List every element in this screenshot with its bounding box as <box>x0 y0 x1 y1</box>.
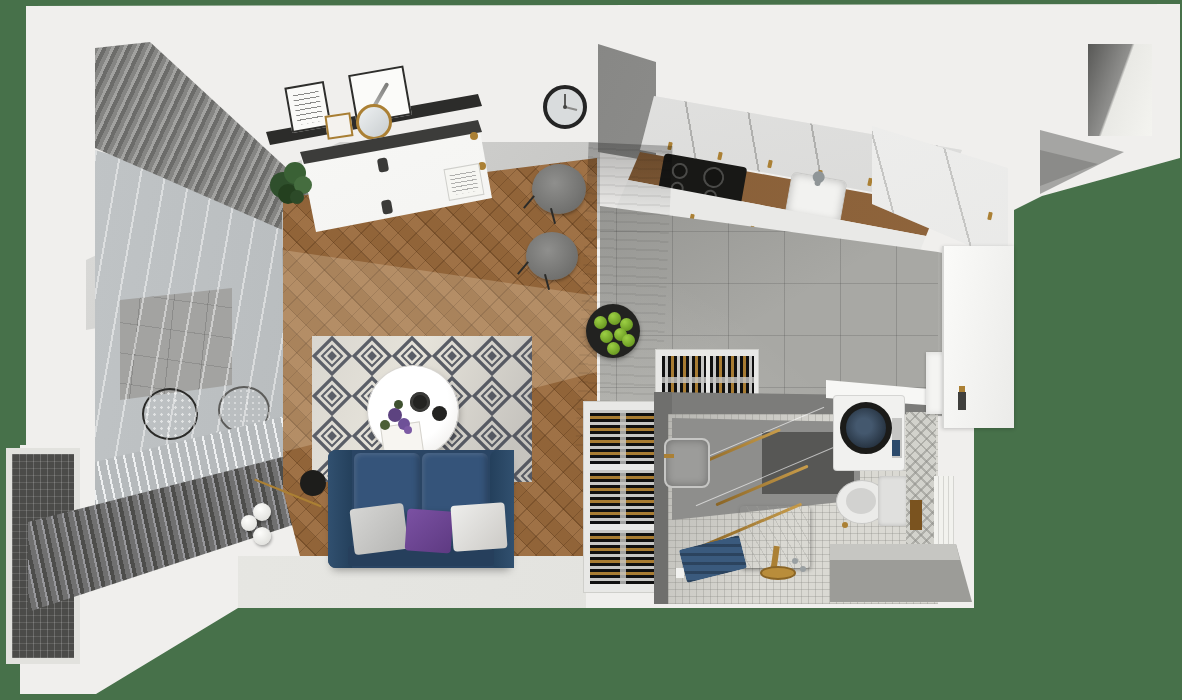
bouquet-green <box>380 420 390 430</box>
wall-niche <box>1088 44 1152 136</box>
black-candle-bowl <box>410 392 430 412</box>
washer-drum-icon <box>840 402 892 454</box>
dining-chair-1 <box>532 164 586 214</box>
washing-machine <box>834 396 904 470</box>
magazine-text-lines <box>449 169 478 195</box>
gold-floor-faucet-base <box>760 566 796 580</box>
navy-sofa <box>328 450 514 568</box>
toilet-gold-pipe <box>842 522 848 528</box>
art-text-lines <box>292 89 323 125</box>
bouquet-green-2 <box>394 400 403 409</box>
toilet-seat <box>846 488 876 514</box>
black-side-disc <box>300 470 326 496</box>
wine-bottles-compartment <box>590 410 656 464</box>
wall-clock <box>542 84 588 130</box>
wine-bottles-compartment <box>590 470 656 524</box>
wine-bottles-compartment <box>590 530 656 584</box>
open-magazine <box>443 163 484 201</box>
pillow-purple <box>405 508 454 553</box>
small-gold-frame <box>324 112 353 139</box>
burner-icon <box>701 165 725 189</box>
lamp-globe <box>253 527 271 545</box>
typography-art-frame <box>284 81 331 133</box>
lamp-globe <box>241 515 257 531</box>
washer-display <box>892 440 900 456</box>
plant-leaf-5 <box>290 190 304 204</box>
toilet-tank <box>878 476 908 526</box>
wine-rack-vertical <box>584 402 662 592</box>
green-apple <box>607 342 620 355</box>
black-candle-small <box>432 406 447 421</box>
pillow-gray <box>349 503 408 555</box>
green-apple <box>594 316 607 329</box>
door-handle <box>958 392 966 410</box>
faucet-handle-dot <box>792 558 798 564</box>
basin-gold-tap <box>664 454 674 458</box>
gold-knob <box>470 132 478 140</box>
wash-basin <box>664 438 710 488</box>
fruit-plate <box>586 304 640 358</box>
bouquet-purple-3 <box>404 426 412 434</box>
green-apple <box>622 334 635 347</box>
faucet-handle-dot <box>800 566 806 572</box>
pillow-white <box>450 502 507 552</box>
wood-inset-panel <box>910 500 922 530</box>
round-gold-mirror <box>356 104 392 140</box>
dining-chair-2 <box>526 232 578 280</box>
entrance-door <box>942 246 1014 428</box>
green-apple <box>600 330 613 343</box>
burner-icon <box>670 162 689 181</box>
apartment-render-stage <box>0 0 1182 700</box>
